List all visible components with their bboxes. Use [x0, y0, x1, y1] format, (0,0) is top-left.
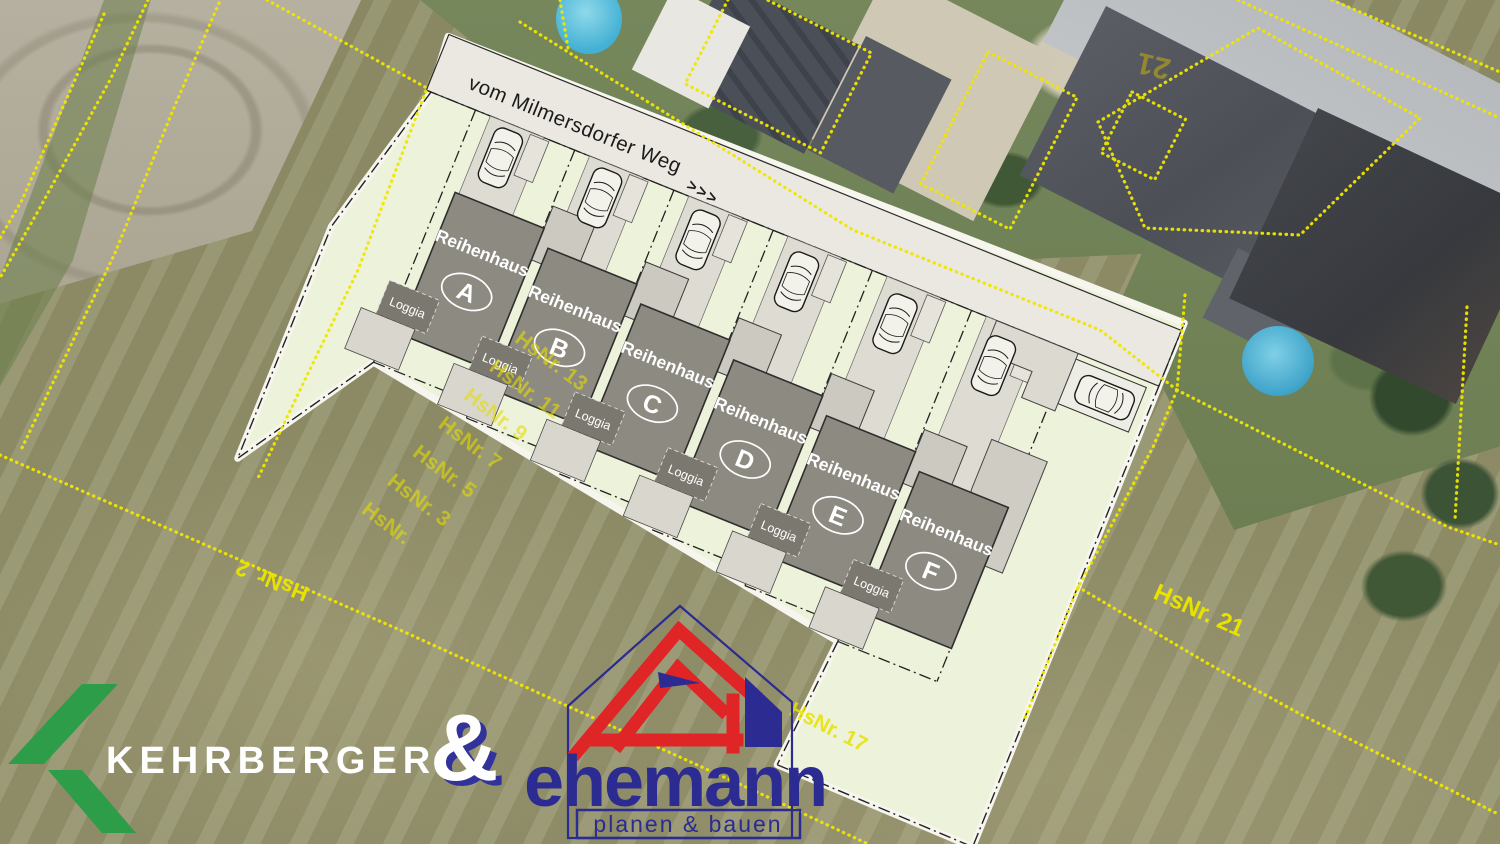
boundary-line — [1455, 307, 1467, 520]
roof-outline — [921, 52, 1077, 229]
site-plan-overlay: vom Milmersdorfer Weg >>> — [0, 0, 1500, 844]
boundary-line — [1078, 587, 1500, 815]
boundary-line — [1332, 0, 1500, 72]
roof-outline — [1101, 92, 1185, 180]
boundary-line — [0, 14, 104, 238]
boundary-line — [560, 0, 568, 48]
aerial-site-plan: vom Milmersdorfer Weg >>> — [0, 0, 1500, 844]
site-plan-group: vom Milmersdorfer Weg >>> — [206, 13, 1184, 844]
parcel-label-hsnr2: HsNr. 2 — [232, 555, 312, 607]
parcel-label-hsnr21: HsNr. 21 — [1150, 579, 1249, 643]
boundary-line — [1238, 0, 1500, 118]
roof-number-21: 21 — [1134, 46, 1174, 86]
parcel-label: HsNr. — [357, 498, 415, 549]
boundary-line — [20, 3, 219, 452]
boundary-line — [1177, 390, 1500, 545]
boundary-line — [0, 0, 148, 278]
roof-outline — [685, 0, 871, 153]
